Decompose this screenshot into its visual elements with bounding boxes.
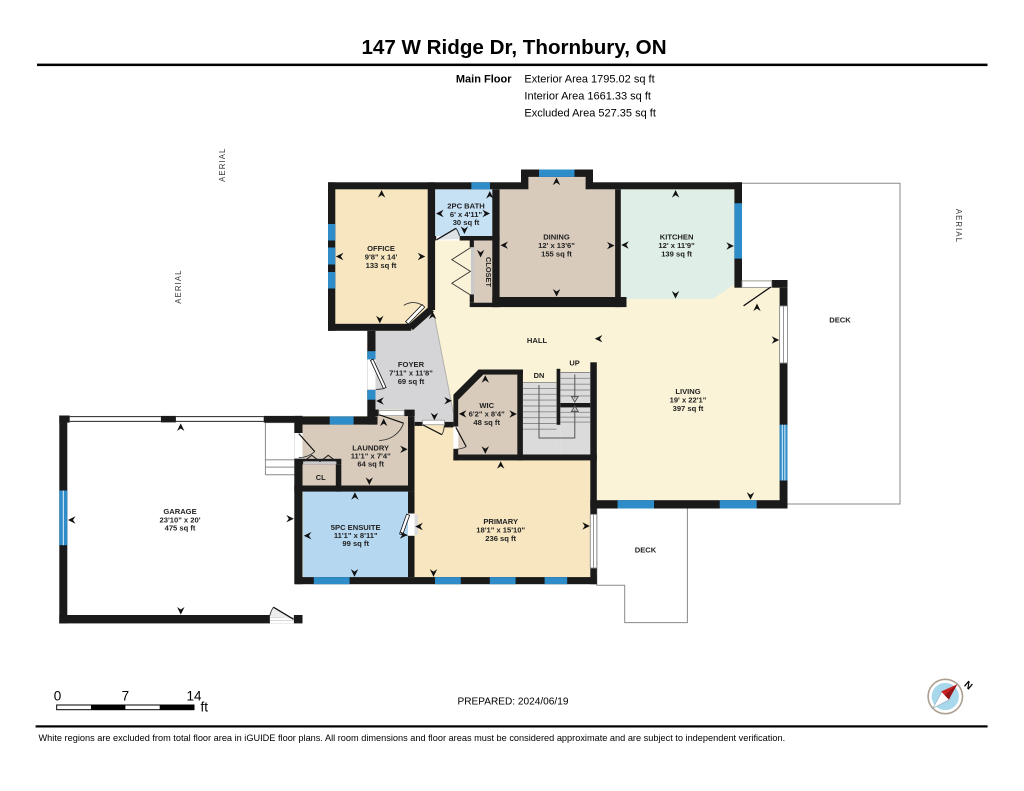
svg-text:Main Floor: Main Floor — [456, 74, 512, 86]
svg-text:CL: CL — [316, 473, 326, 482]
svg-text:DECK: DECK — [829, 316, 851, 325]
svg-text:48 sq ft: 48 sq ft — [473, 418, 500, 427]
svg-text:Exterior Area 1795.02 sq ft: Exterior Area 1795.02 sq ft — [524, 74, 654, 86]
svg-text:ft: ft — [201, 700, 209, 715]
svg-text:236 sq ft: 236 sq ft — [485, 534, 516, 543]
svg-text:HALL: HALL — [527, 336, 548, 345]
svg-text:AERIAL: AERIAL — [174, 269, 183, 303]
svg-text:475 sq ft: 475 sq ft — [165, 524, 196, 533]
svg-text:CLOSET: CLOSET — [484, 257, 493, 287]
svg-text:7: 7 — [122, 688, 130, 703]
svg-text:AERIAL: AERIAL — [218, 148, 227, 182]
svg-text:99 sq ft: 99 sq ft — [342, 539, 369, 548]
svg-text:UP: UP — [569, 359, 579, 368]
svg-text:139 sq ft: 139 sq ft — [661, 250, 692, 259]
svg-text:147 W Ridge Dr, Thornbury, ON: 147 W Ridge Dr, Thornbury, ON — [361, 36, 666, 59]
svg-text:155 sq ft: 155 sq ft — [541, 249, 572, 258]
svg-text:0: 0 — [54, 688, 62, 703]
svg-text:White regions are excluded fro: White regions are excluded from total fl… — [39, 733, 786, 743]
svg-text:AERIAL: AERIAL — [954, 209, 963, 243]
svg-text:30 sq ft: 30 sq ft — [453, 218, 480, 227]
svg-text:133 sq ft: 133 sq ft — [366, 261, 397, 270]
svg-text:397 sq ft: 397 sq ft — [673, 404, 704, 413]
svg-text:DECK: DECK — [635, 545, 657, 554]
svg-text:DN: DN — [534, 371, 545, 380]
svg-text:PREPARED: 2024/06/19: PREPARED: 2024/06/19 — [458, 697, 569, 708]
svg-text:Excluded Area 527.35 sq ft: Excluded Area 527.35 sq ft — [524, 107, 655, 119]
svg-text:Interior Area 1661.33 sq ft: Interior Area 1661.33 sq ft — [524, 91, 651, 103]
svg-text:69 sq ft: 69 sq ft — [398, 377, 425, 386]
svg-text:64 sq ft: 64 sq ft — [357, 460, 384, 469]
